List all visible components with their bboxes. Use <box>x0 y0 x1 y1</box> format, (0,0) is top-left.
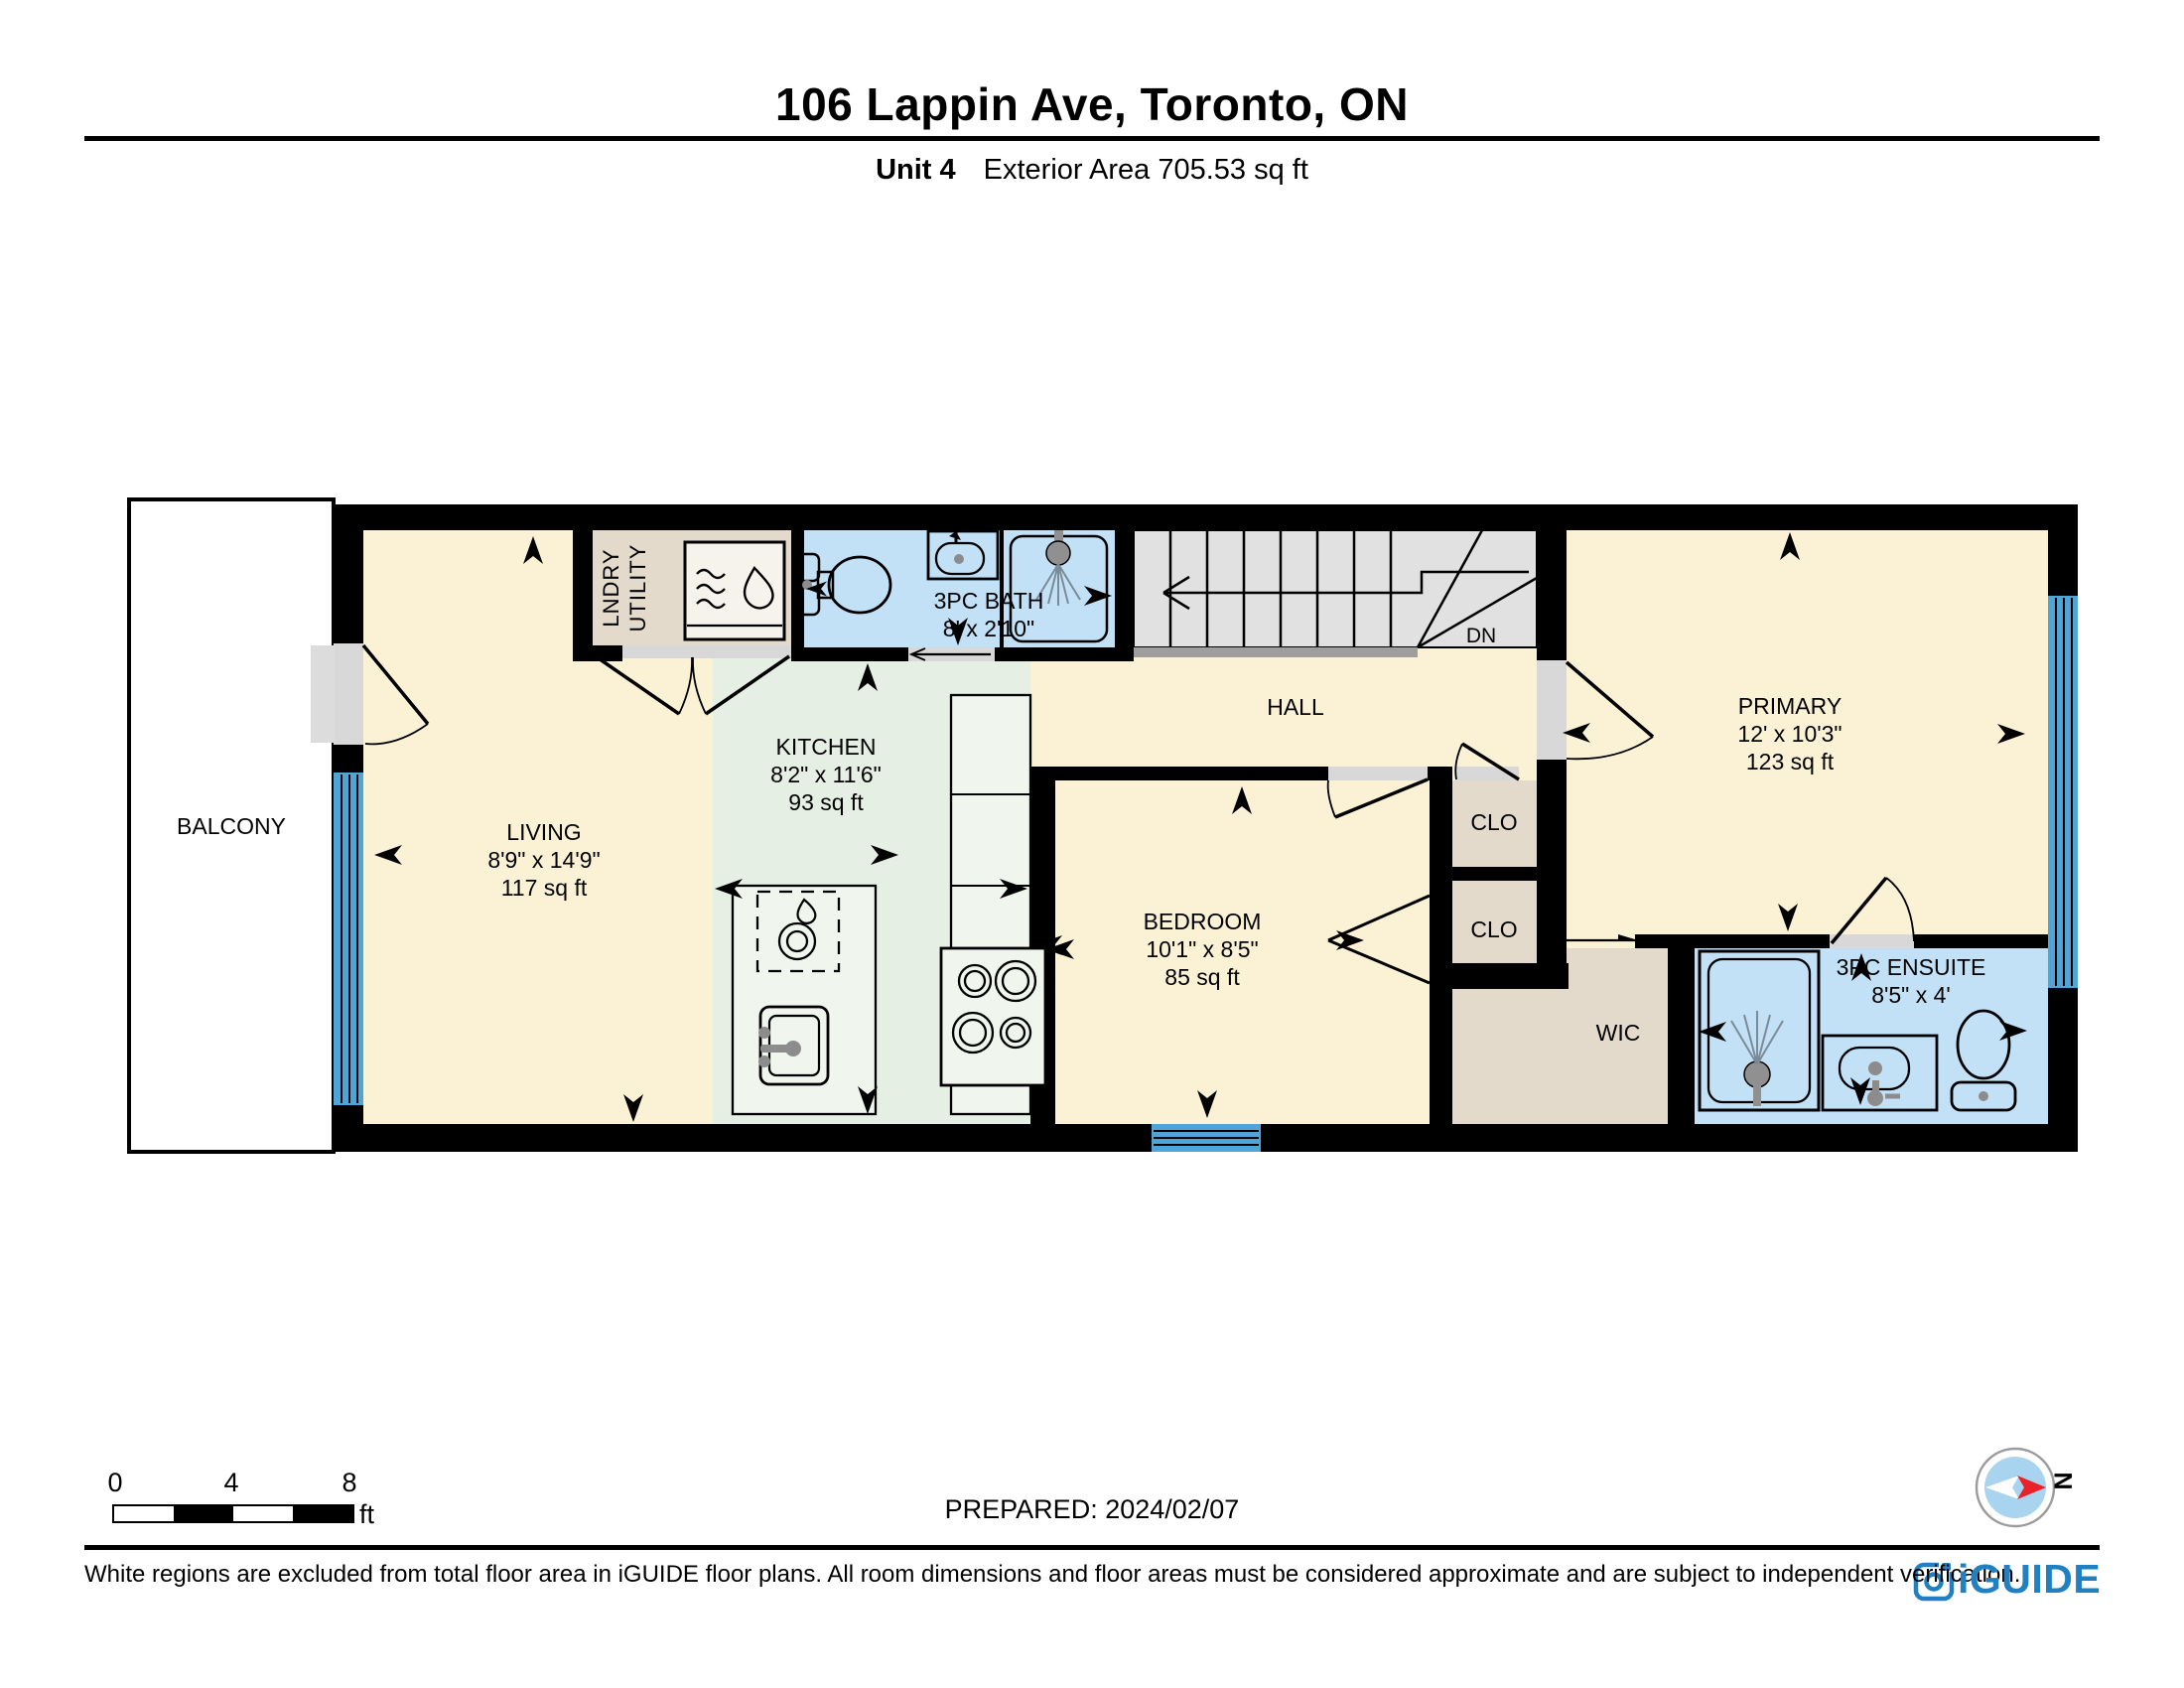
closet-bottom-label: CLO <box>1470 915 1517 943</box>
bedroom-name: BEDROOM <box>1144 908 1262 935</box>
balcony-threshold <box>311 645 335 743</box>
laundry-line2: UTILITY <box>624 544 651 633</box>
living-dims: 8'9" x 14'9" <box>487 846 600 874</box>
primary-area: 123 sq ft <box>1737 748 1842 775</box>
balcony-door-opening <box>334 643 363 745</box>
wall-closet-mid <box>1430 867 1537 881</box>
floor-plan-graphic <box>0 0 2184 1688</box>
balcony-name: BALCONY <box>177 812 286 840</box>
dn-text: DN <box>1466 625 1496 648</box>
ensuite-label: 3PC ENSUITE 8'5" x 4' <box>1837 953 1986 1009</box>
wall-bottom-left <box>334 1124 1152 1152</box>
wall-bath-bottom-left <box>791 647 908 661</box>
compass-north-label: N <box>2048 1472 2077 1489</box>
bath-dims: 8' x 2'10" <box>934 615 1044 642</box>
bedroom-label: BEDROOM 10'1" x 8'5" 85 sq ft <box>1144 908 1262 991</box>
wall-top <box>334 504 2078 530</box>
living-name: LIVING <box>487 818 600 846</box>
wall-bedroom-top <box>1030 767 1328 780</box>
bath-name: 3PC BATH <box>934 587 1044 615</box>
laundry-line1: LNDRY <box>598 544 624 633</box>
kitchen-name: KITCHEN <box>770 733 882 761</box>
wall-primary-bottom-1 <box>1635 934 1830 948</box>
closet-top-name: CLO <box>1470 808 1517 836</box>
washer-icon <box>685 542 784 639</box>
wall-shower-stairs <box>1115 504 1134 661</box>
wall-left-2 <box>334 745 363 773</box>
bath-label: 3PC BATH 8' x 2'10" <box>934 587 1044 642</box>
stove-icon <box>941 948 1045 1085</box>
bedroom-dims: 10'1" x 8'5" <box>1144 935 1262 963</box>
wic-label: WIC <box>1596 1019 1641 1047</box>
wall-closet-bottom <box>1430 963 1569 989</box>
wall-primary-bottom-2 <box>1914 934 2048 948</box>
prepared-date: PREPARED: 2024/02/07 <box>0 1494 2184 1525</box>
wall-bath-bottom-right <box>995 647 1134 661</box>
disclaimer-text: White regions are excluded from total fl… <box>84 1561 2020 1589</box>
kitchen-counter-left <box>733 886 876 1114</box>
wic-name: WIC <box>1596 1019 1641 1047</box>
bedroom-area: 85 sq ft <box>1144 963 1262 991</box>
primary-label: PRIMARY 12' x 10'3" 123 sq ft <box>1737 692 1842 775</box>
primary-name: PRIMARY <box>1737 692 1842 720</box>
wall-bottom-right <box>1261 1124 2078 1152</box>
wall-wic-ensuite <box>1668 934 1695 1124</box>
living-label: LIVING 8'9" x 14'9" 117 sq ft <box>487 818 600 902</box>
wall-left-1 <box>334 504 363 643</box>
wall-right-1 <box>2048 504 2078 596</box>
stairs-dn-label: DN <box>1466 625 1496 648</box>
wall-closet-left <box>1430 767 1452 1124</box>
ensuite-name: 3PC ENSUITE <box>1837 953 1986 981</box>
wall-laundry-left <box>573 530 593 647</box>
living-area: 117 sq ft <box>487 874 600 902</box>
closet-top-label: CLO <box>1470 808 1517 836</box>
closet-bottom-name: CLO <box>1470 915 1517 943</box>
laundry-label: LNDRY UTILITY <box>598 544 651 633</box>
hall-name: HALL <box>1267 693 1324 721</box>
footer-divider <box>84 1545 2100 1550</box>
kitchen-label: KITCHEN 8'2" x 11'6" 93 sq ft <box>770 733 882 816</box>
wall-left-3 <box>334 1105 363 1152</box>
kitchen-dims: 8'2" x 11'6" <box>770 761 882 788</box>
wall-right-2 <box>2048 988 2078 1152</box>
stairs-edge <box>1134 647 1418 657</box>
balcony-label: BALCONY <box>177 812 286 840</box>
ensuite-dims: 8'5" x 4' <box>1837 981 1986 1009</box>
primary-dims: 12' x 10'3" <box>1737 720 1842 748</box>
kitchen-area: 93 sq ft <box>770 788 882 816</box>
hall-label: HALL <box>1267 693 1324 721</box>
iguide-wordmark: iGUIDE <box>1958 1556 2101 1603</box>
